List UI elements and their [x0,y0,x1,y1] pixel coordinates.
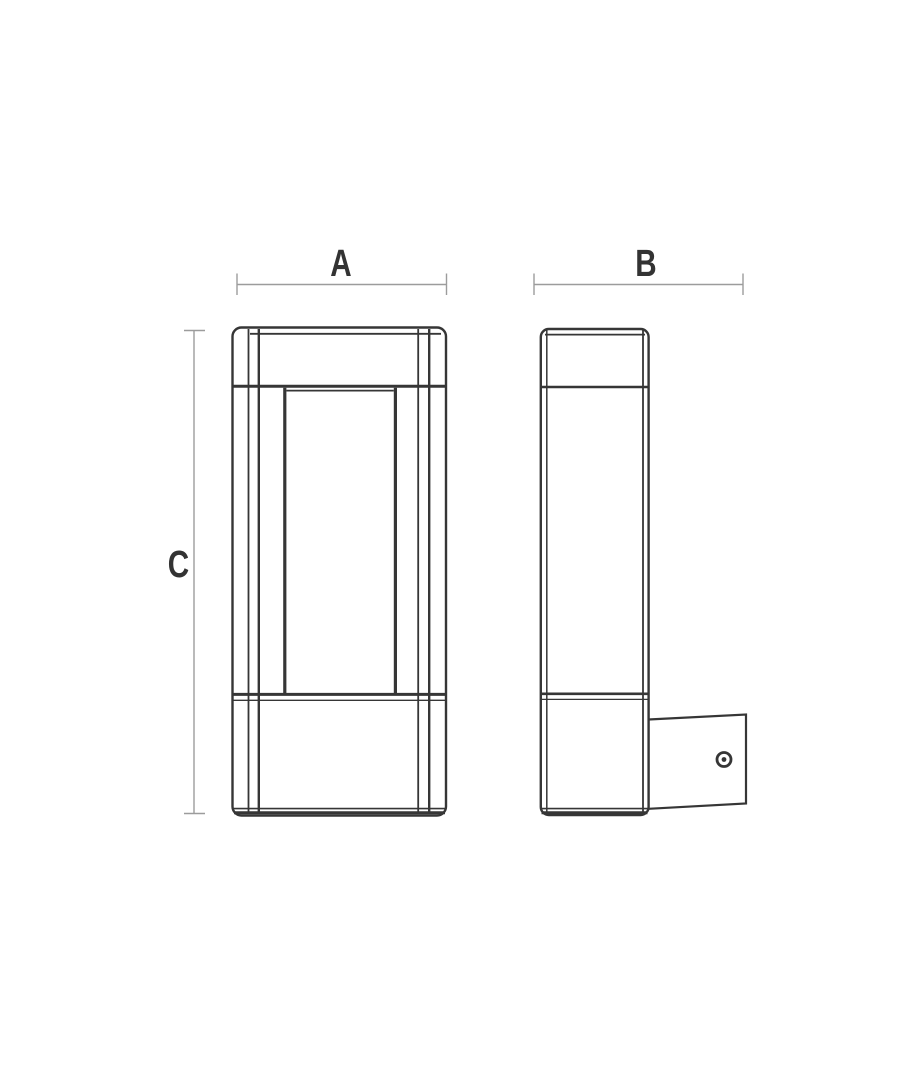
dimension-b-label: B [635,243,656,285]
dimension-a: A [237,243,447,295]
dimension-b: B [534,243,743,295]
dimension-c: C [168,331,205,814]
dimension-a-label: A [330,243,351,285]
luminaire-dimension-drawing: A B C [0,0,910,1080]
technical-drawing-page: A B C [0,0,910,1080]
side-body-outline [541,329,649,815]
mounting-screw-center-dot [722,757,727,762]
wall-mount-bracket [649,715,747,809]
side-view [541,329,649,815]
front-view [233,328,447,816]
front-body-outline [233,328,447,816]
dimension-c-label: C [168,544,189,586]
